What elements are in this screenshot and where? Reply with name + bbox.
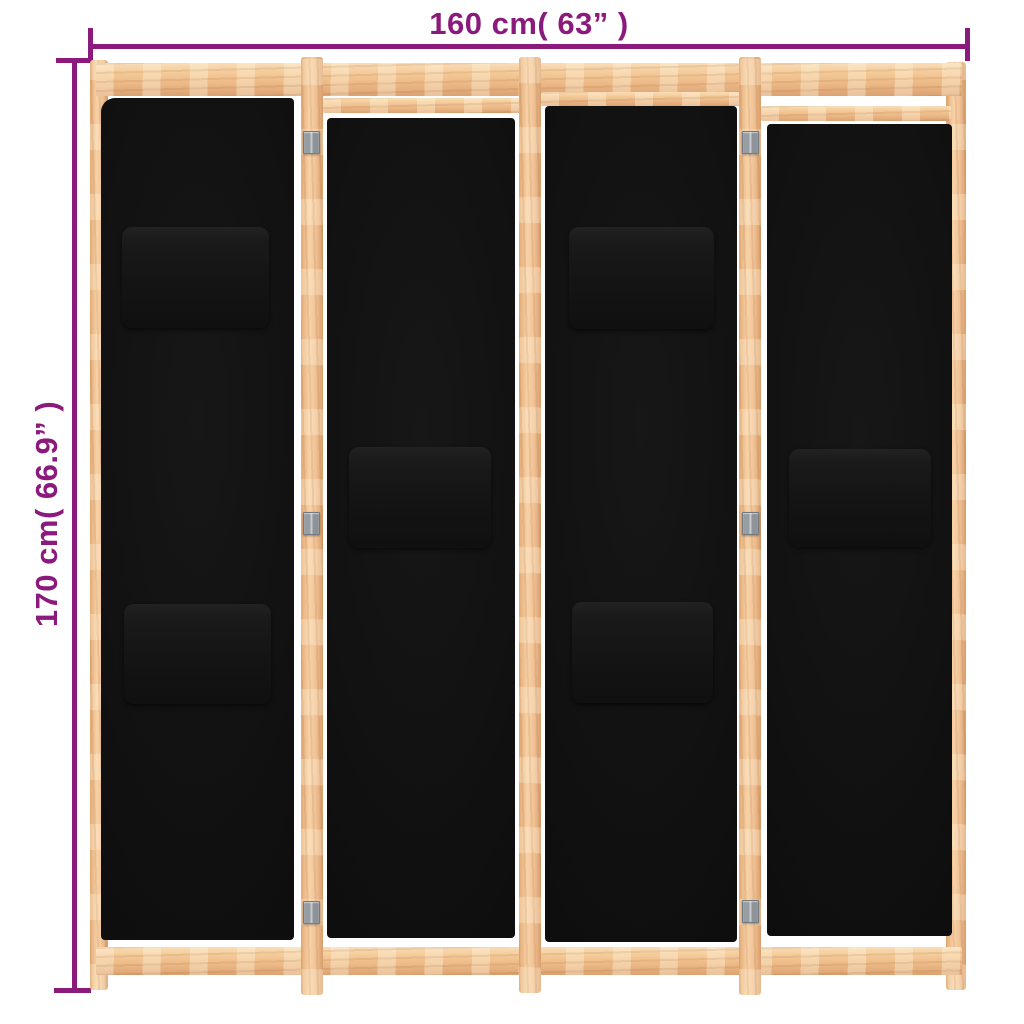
width-dimension-right-tick	[965, 28, 970, 61]
panel-4-top-rail	[761, 106, 951, 121]
hinge-3-4-top	[742, 131, 759, 154]
hinge-1-2-bottom	[303, 901, 320, 924]
height-dimension-bottom-tick	[54, 988, 91, 993]
panel-1-upper-pocket	[122, 227, 269, 328]
panel-4-middle-pocket	[789, 449, 931, 547]
post-between-panels-2-3	[519, 57, 541, 993]
panel-1-lower-pocket	[124, 604, 271, 704]
panel-3-lower-pocket	[572, 602, 713, 703]
height-dimension-top-tick	[56, 58, 93, 63]
hinge-3-4-bottom	[742, 900, 759, 923]
panel-3-top-rail	[541, 92, 741, 106]
width-label: 160 cm( 63” )	[90, 6, 968, 42]
fabric-panel-1	[101, 98, 294, 940]
panel-3-upper-pocket	[569, 227, 714, 329]
width-dimension-line	[90, 44, 968, 49]
height-label: 170 cm( 66.9” )	[29, 401, 65, 627]
panel-2-top-rail	[323, 98, 523, 113]
hinge-1-2-middle	[303, 512, 320, 535]
product-image: 160 cm( 63” ) 170 cm( 66.9” )	[0, 0, 1024, 1024]
panel-2-middle-pocket	[349, 447, 491, 548]
hinge-1-2-top	[303, 131, 320, 154]
hinge-3-4-middle	[742, 512, 759, 535]
height-dimension-line	[72, 60, 77, 993]
